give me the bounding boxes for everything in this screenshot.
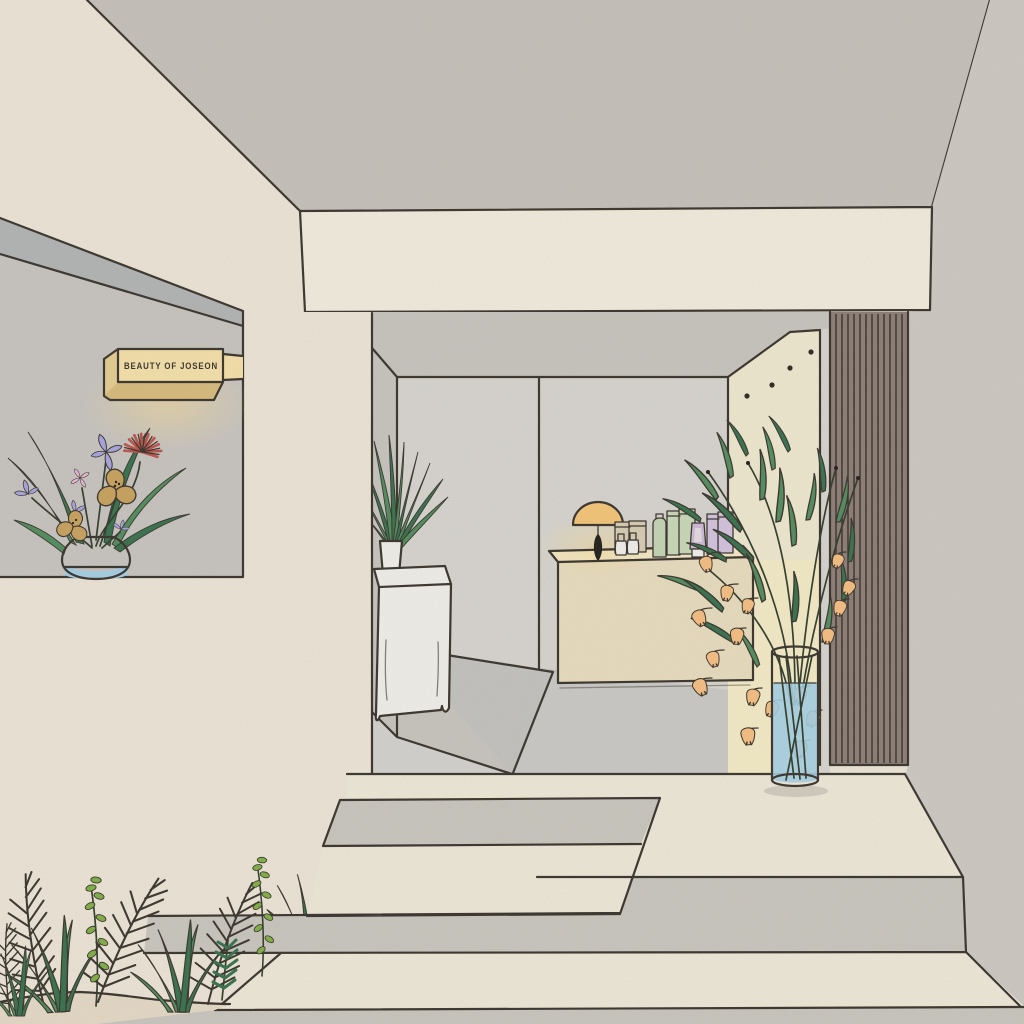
storefront-illustration: BEAUTY OF JOSEON: [0, 0, 1024, 1024]
illustration-canvas: BEAUTY OF JOSEON: [0, 0, 1024, 1024]
paper-grain: [0, 0, 1024, 1024]
